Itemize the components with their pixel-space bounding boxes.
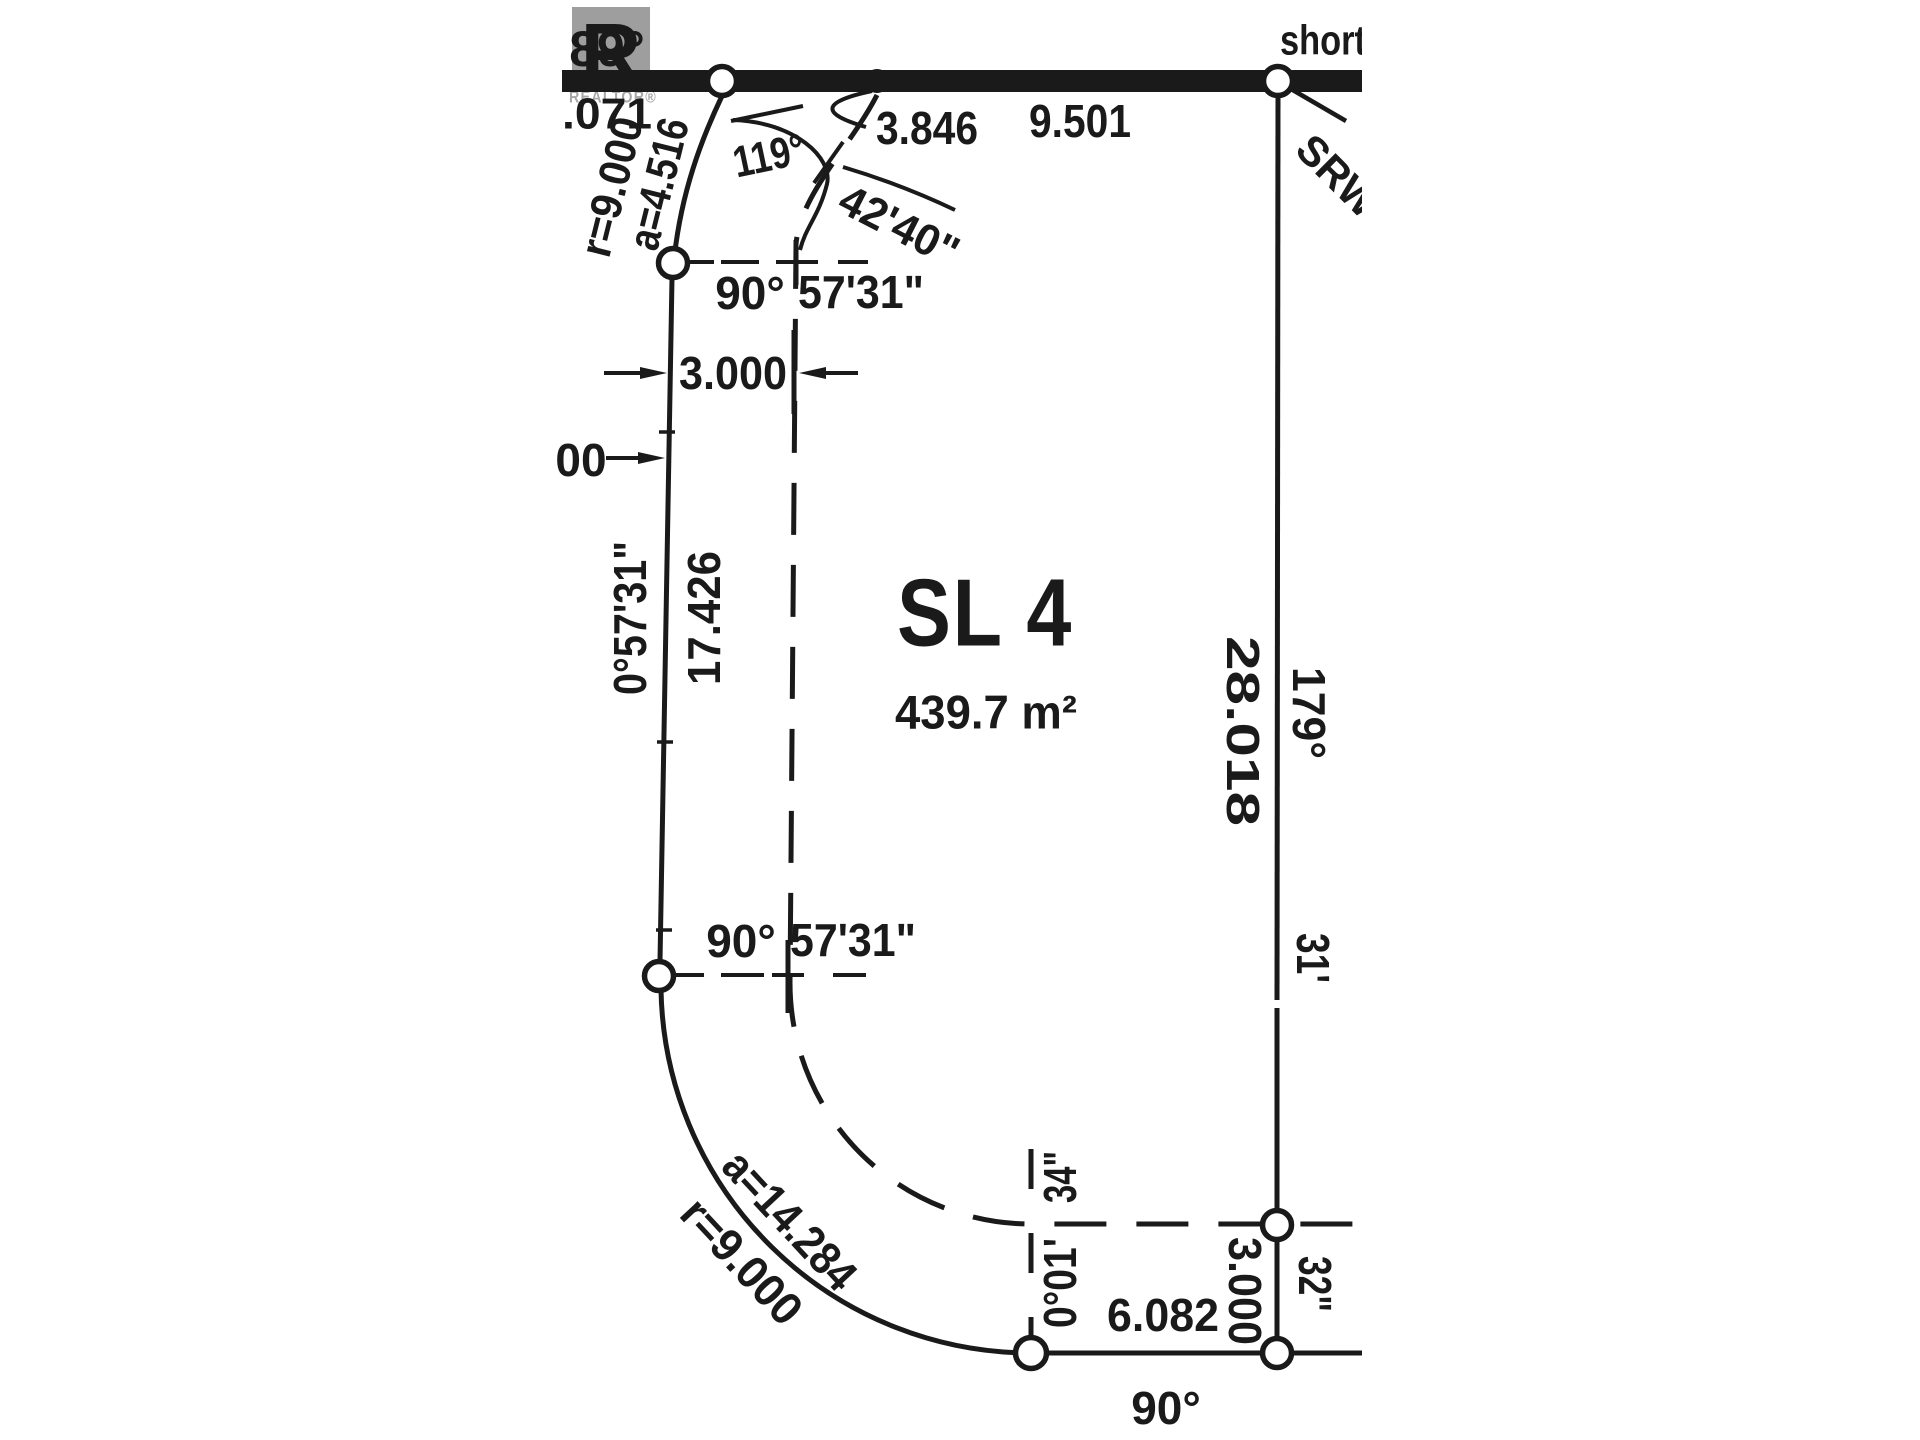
pin-se-corner-icon	[1263, 1339, 1292, 1368]
road-bearing-89: 89°	[569, 21, 645, 77]
east-boundary-line-upper	[1277, 96, 1278, 1000]
clipped-dim-00: 00	[555, 434, 606, 486]
pin-nw-curve-end-icon	[659, 249, 688, 278]
west-bearing-label: 0°57'31"	[604, 541, 656, 695]
pin-road-srw-dot-icon	[865, 69, 889, 93]
south-distance-6082: 6.082	[1107, 1289, 1219, 1341]
south-bearing-sec: 34"	[1034, 1151, 1086, 1203]
pin-road-east-icon	[1264, 67, 1293, 96]
lot-name: SL 4	[897, 560, 1073, 667]
south-angle-90: 90°	[1131, 1382, 1201, 1434]
upper-angle-deg: 90°	[715, 267, 785, 319]
lower-angle-minsec: 57'31"	[790, 914, 916, 966]
upper-angle-minsec: 57'31"	[798, 266, 924, 318]
east-bearing-min: 31'	[1287, 933, 1339, 983]
pin-east-srw-icon	[1263, 1211, 1292, 1240]
lower-angle-deg: 90°	[706, 915, 776, 967]
west-distance-label: 17.426	[678, 551, 730, 685]
east-bearing-deg: 179°	[1283, 667, 1335, 759]
road-distance-3846: 3.846	[876, 102, 978, 154]
pin-road-west-icon	[708, 67, 737, 96]
road-distance-9501: 9.501	[1029, 95, 1131, 147]
setback-dim-3000: 3.000	[679, 347, 787, 399]
pin-south-curve-end-icon	[1016, 1338, 1047, 1369]
lot-area: 439.7 m²	[895, 686, 1077, 739]
east-bearing-sec: 32"	[1289, 1256, 1341, 1312]
survey-plan-drawing: R REALTOR® 89° .071 short 9.501 3.846 SR…	[0, 0, 1920, 1440]
east-setback-dist: 3.000	[1219, 1237, 1271, 1345]
pin-west-curve-start-icon	[645, 962, 674, 991]
south-bearing-degmin: 0°01'	[1034, 1238, 1086, 1328]
survey-plan-page: R REALTOR® 89° .071 short 9.501 3.846 SR…	[0, 0, 1920, 1440]
east-distance-label: 28.018	[1217, 636, 1269, 826]
street-name-label: short	[1280, 17, 1366, 64]
